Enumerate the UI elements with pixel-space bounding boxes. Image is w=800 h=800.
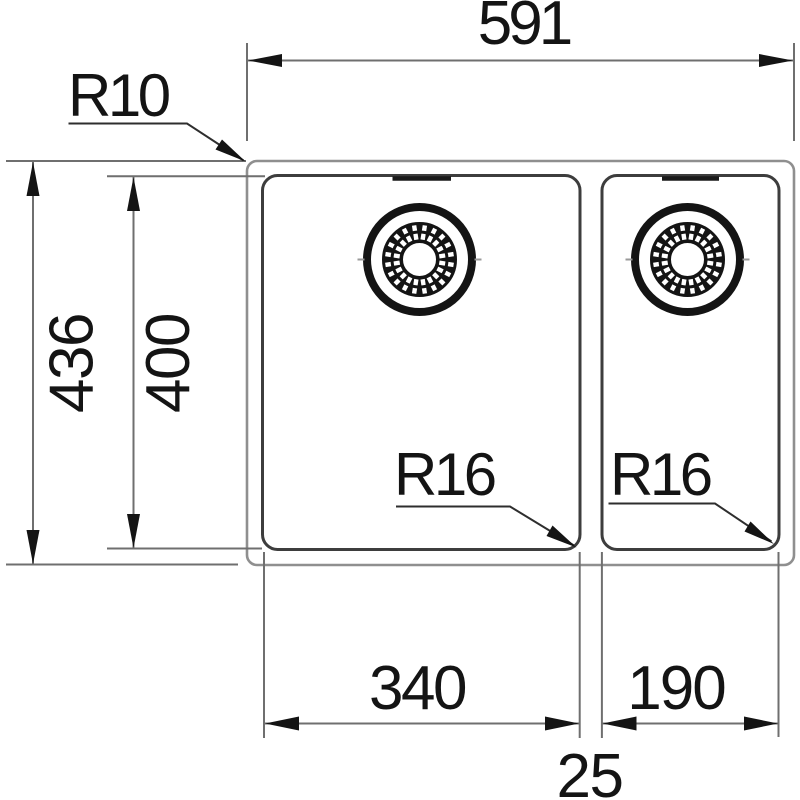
svg-text:25: 25 <box>557 742 623 800</box>
svg-text:190: 190 <box>627 654 725 723</box>
svg-text:R16: R16 <box>394 441 495 508</box>
svg-text:400: 400 <box>134 314 203 413</box>
svg-text:340: 340 <box>369 654 466 723</box>
svg-text:R10: R10 <box>68 62 170 129</box>
svg-text:591: 591 <box>478 0 571 58</box>
svg-text:436: 436 <box>38 314 107 413</box>
svg-text:R16: R16 <box>610 441 711 508</box>
